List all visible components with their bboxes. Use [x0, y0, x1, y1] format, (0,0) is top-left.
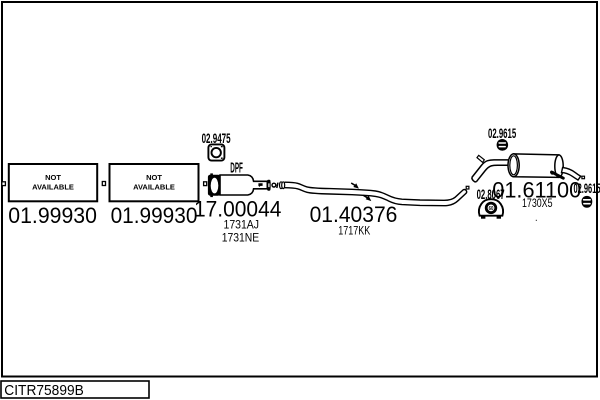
svg-text:01.99930: 01.99930 — [111, 203, 198, 228]
svg-text:1730X5: 1730X5 — [522, 196, 553, 210]
svg-text:02.9615: 02.9615 — [574, 180, 600, 196]
svg-text:AVAILABLE: AVAILABLE — [32, 183, 74, 192]
svg-text:02.9615: 02.9615 — [488, 125, 516, 141]
svg-text:60: 60 — [489, 206, 494, 212]
svg-text:NOT: NOT — [45, 173, 61, 182]
svg-text:CITR75899B: CITR75899B — [4, 383, 84, 399]
svg-text:NOT: NOT — [146, 173, 162, 182]
svg-text:DPF: DPF — [230, 161, 243, 177]
svg-text:01.99930: 01.99930 — [8, 203, 97, 228]
svg-text:1717KK: 1717KK — [338, 224, 370, 238]
svg-text:AVAILABLE: AVAILABLE — [133, 183, 175, 192]
svg-text:1731NE: 1731NE — [222, 231, 260, 245]
svg-text:1731AJ: 1731AJ — [224, 218, 260, 232]
